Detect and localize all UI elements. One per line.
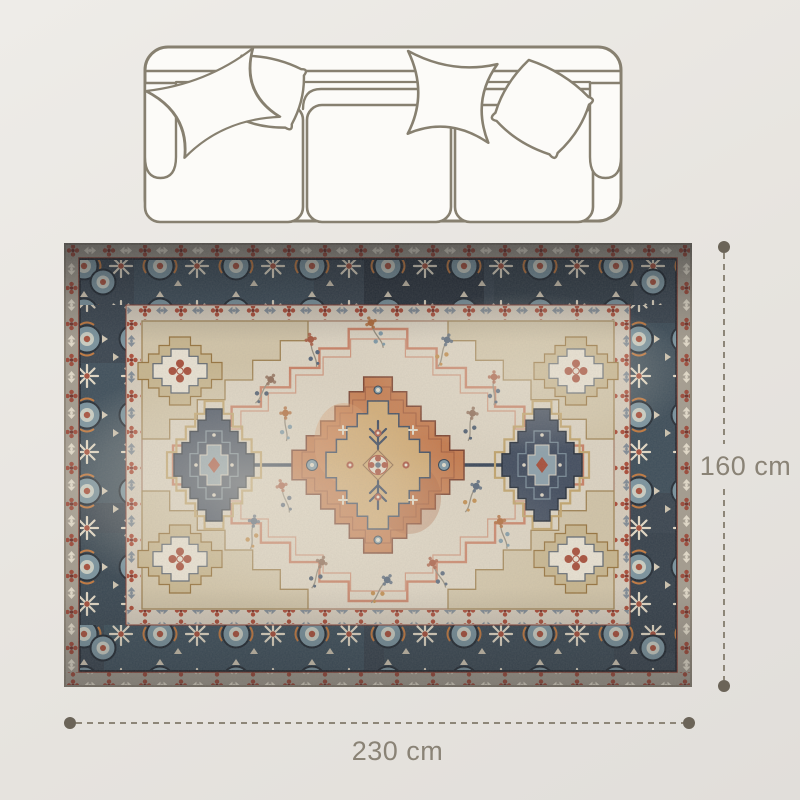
rug-image-container [64, 243, 692, 687]
height-dimension-line: 160 cm [717, 241, 730, 692]
product-dimension-diagram: 160 cm 230 cm [0, 0, 800, 800]
width-dimension-label-row: 230 cm [64, 736, 695, 767]
height-dimension-label: 160 cm [700, 451, 792, 482]
dashed-line-vertical [723, 253, 725, 444]
rug-product-image [64, 243, 692, 687]
width-dimension-line [64, 716, 695, 729]
dimension-endpoint-dot [718, 680, 730, 692]
sofa-top-view-illustration [143, 45, 623, 225]
rug-vintage-overlay [64, 243, 692, 687]
dimension-endpoint-dot [718, 241, 730, 253]
dimension-endpoint-dot [64, 717, 76, 729]
width-dimension-label: 230 cm [352, 736, 444, 767]
dashed-line-horizontal [76, 722, 683, 724]
dimension-endpoint-dot [683, 717, 695, 729]
sofa-illustration-container [143, 45, 623, 225]
dashed-line-vertical [723, 489, 725, 680]
